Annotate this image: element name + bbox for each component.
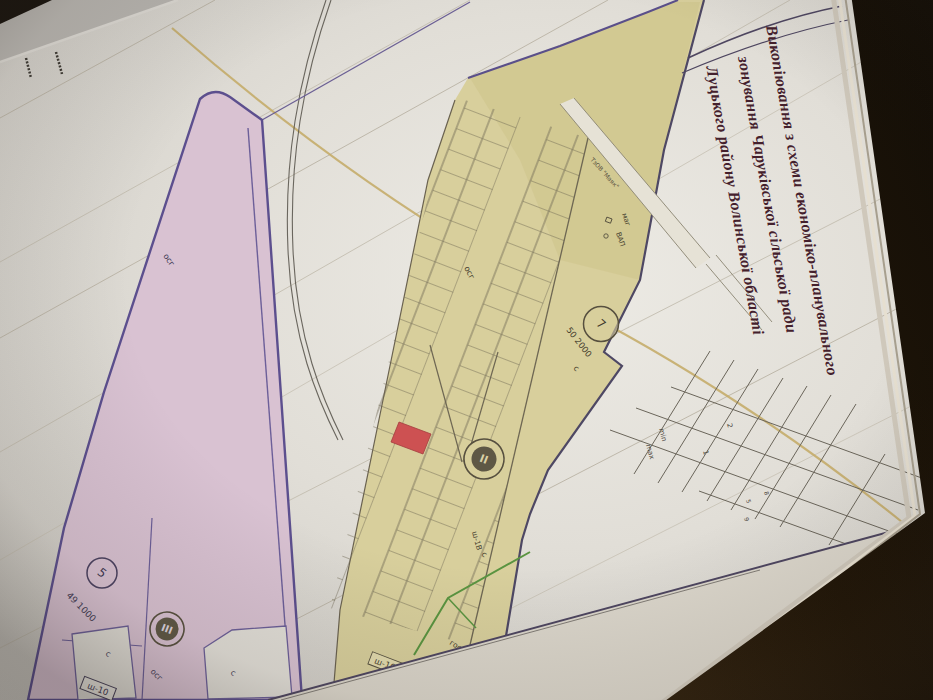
photo-vignette: [0, 0, 933, 700]
map-photo-canvas: осг 5 49 1000 III осг с с ш-10: [0, 0, 933, 700]
photo-of-map-page: осг 5 49 1000 III осг с с ш-10: [0, 0, 933, 700]
